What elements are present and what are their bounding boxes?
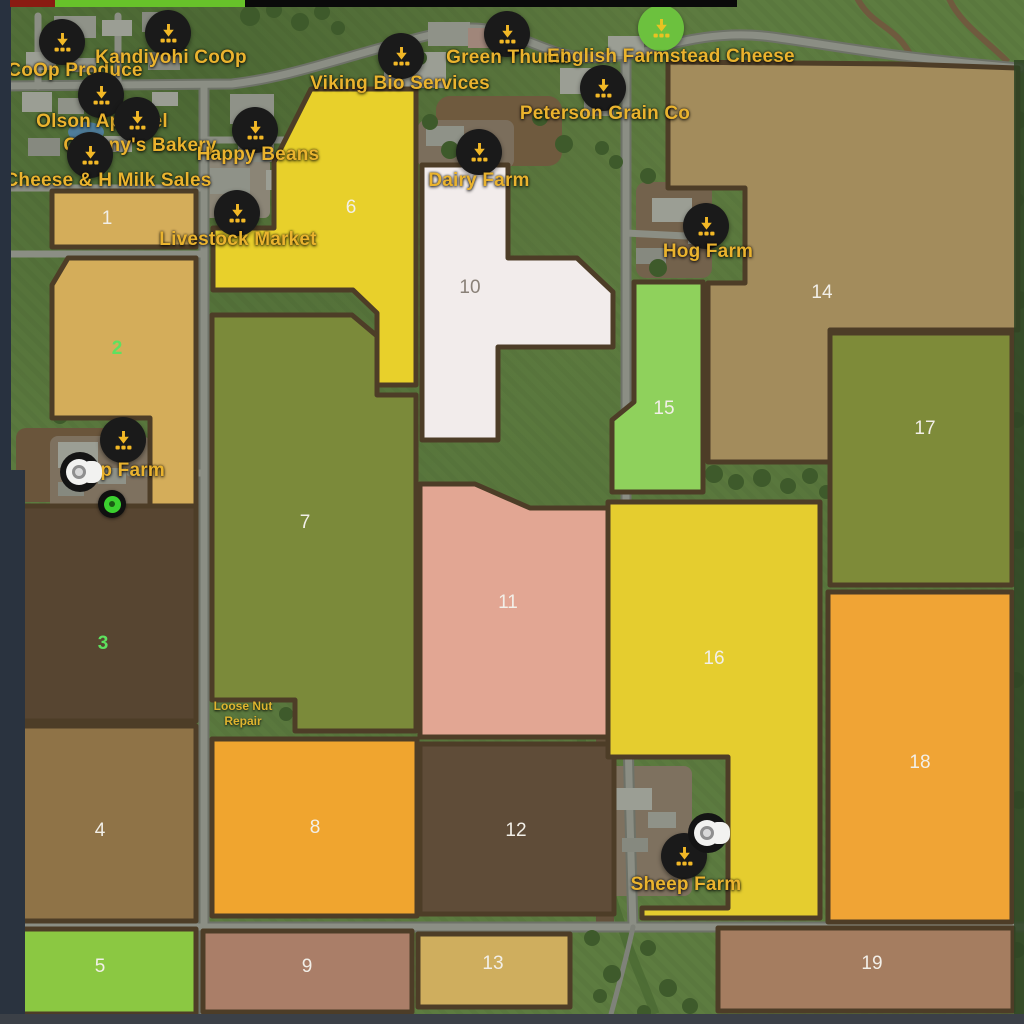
field-number-16: 16 <box>703 648 724 669</box>
field-number-13: 13 <box>482 953 503 974</box>
download-arrow-glyph <box>590 75 617 102</box>
sellpoint-label-english-farmstead-cheese: English Farmstead Cheese <box>547 46 795 68</box>
map-edge-right <box>1014 60 1024 1014</box>
field-15 <box>612 282 703 492</box>
sellpoint-label-kandiyohi-coop: Kandiyohi CoOp <box>95 47 247 69</box>
download-arrow-glyph <box>648 15 675 42</box>
download-arrow-glyph <box>88 82 115 109</box>
player-dot <box>104 496 121 513</box>
download-arrow-glyph <box>77 142 104 169</box>
vehicle-wheel-icon <box>72 465 86 479</box>
map-viewport: 12345678910111213141516171819 CoOp Produ… <box>0 0 1024 1024</box>
field-17 <box>830 333 1012 585</box>
field-10 <box>422 165 613 440</box>
status-bar-segment-red <box>10 0 55 7</box>
map-edge-bottom <box>0 1014 1024 1024</box>
field-number-15: 15 <box>653 398 674 419</box>
field-number-11: 11 <box>498 592 518 613</box>
sellpoint-label-sheep-farm: Sheep Farm <box>631 874 742 896</box>
field-3 <box>15 506 196 721</box>
field-16 <box>608 502 820 918</box>
download-arrow-glyph <box>388 43 415 70</box>
field-number-19: 19 <box>861 953 882 974</box>
sellpoint-icon-coop-produce[interactable] <box>39 19 85 65</box>
service-label-loose-nut-repair: Loose NutRepair <box>214 699 273 729</box>
sellpoint-icon-crop-farm[interactable] <box>100 417 146 463</box>
sellpoint-label-peterson-grain-co: Peterson Grain Co <box>520 103 690 125</box>
download-arrow-glyph <box>693 213 720 240</box>
download-arrow-glyph <box>155 20 182 47</box>
field-number-3: 3 <box>98 633 109 654</box>
sellpoint-icon-english-farmstead-cheese[interactable] <box>638 5 684 51</box>
field-number-8: 8 <box>310 817 321 838</box>
field-4 <box>15 726 196 921</box>
download-arrow-glyph <box>110 427 137 454</box>
sellpoint-icon-dairy-farm[interactable] <box>456 129 502 175</box>
sellpoint-label-cheese-h-milk-sales: Cheese & H Milk Sales <box>5 170 212 192</box>
field-number-12: 12 <box>505 820 526 841</box>
download-arrow-glyph <box>49 29 76 56</box>
download-arrow-glyph <box>494 21 521 48</box>
field-number-17: 17 <box>914 418 935 439</box>
download-arrow-glyph <box>466 139 493 166</box>
status-bar-segment-black <box>245 0 737 7</box>
field-number-4: 4 <box>95 820 106 841</box>
field-number-2: 2 <box>112 338 123 359</box>
vehicle-marker-sheep-farm[interactable] <box>688 813 732 853</box>
vehicle-marker-crop-farm[interactable] <box>60 452 104 492</box>
field-number-1: 1 <box>102 208 113 229</box>
download-arrow-glyph <box>224 200 251 227</box>
sellpoint-label-viking-bio-services: Viking Bio Services <box>310 73 490 95</box>
field-number-10: 10 <box>459 277 480 298</box>
sellpoint-label-hog-farm: Hog Farm <box>663 241 753 263</box>
status-bar-segment-green <box>55 0 245 7</box>
field-number-6: 6 <box>346 197 357 218</box>
field-number-7: 7 <box>300 512 311 533</box>
vehicle-wheel-icon <box>700 826 714 840</box>
download-arrow-glyph <box>242 117 269 144</box>
field-5 <box>15 929 196 1014</box>
sellpoint-label-dairy-farm: Dairy Farm <box>428 170 529 192</box>
download-arrow-glyph <box>124 107 151 134</box>
field-number-14: 14 <box>811 282 833 303</box>
field-number-5: 5 <box>95 956 106 977</box>
player-marker-icon[interactable] <box>98 490 126 518</box>
field-number-9: 9 <box>302 956 313 977</box>
field-number-18: 18 <box>909 752 930 773</box>
map-edge-left-lower <box>0 470 25 1024</box>
sellpoint-label-livestock-market: Livestock Market <box>159 229 316 251</box>
sellpoint-label-happy-beans: Happy Beans <box>197 144 320 166</box>
